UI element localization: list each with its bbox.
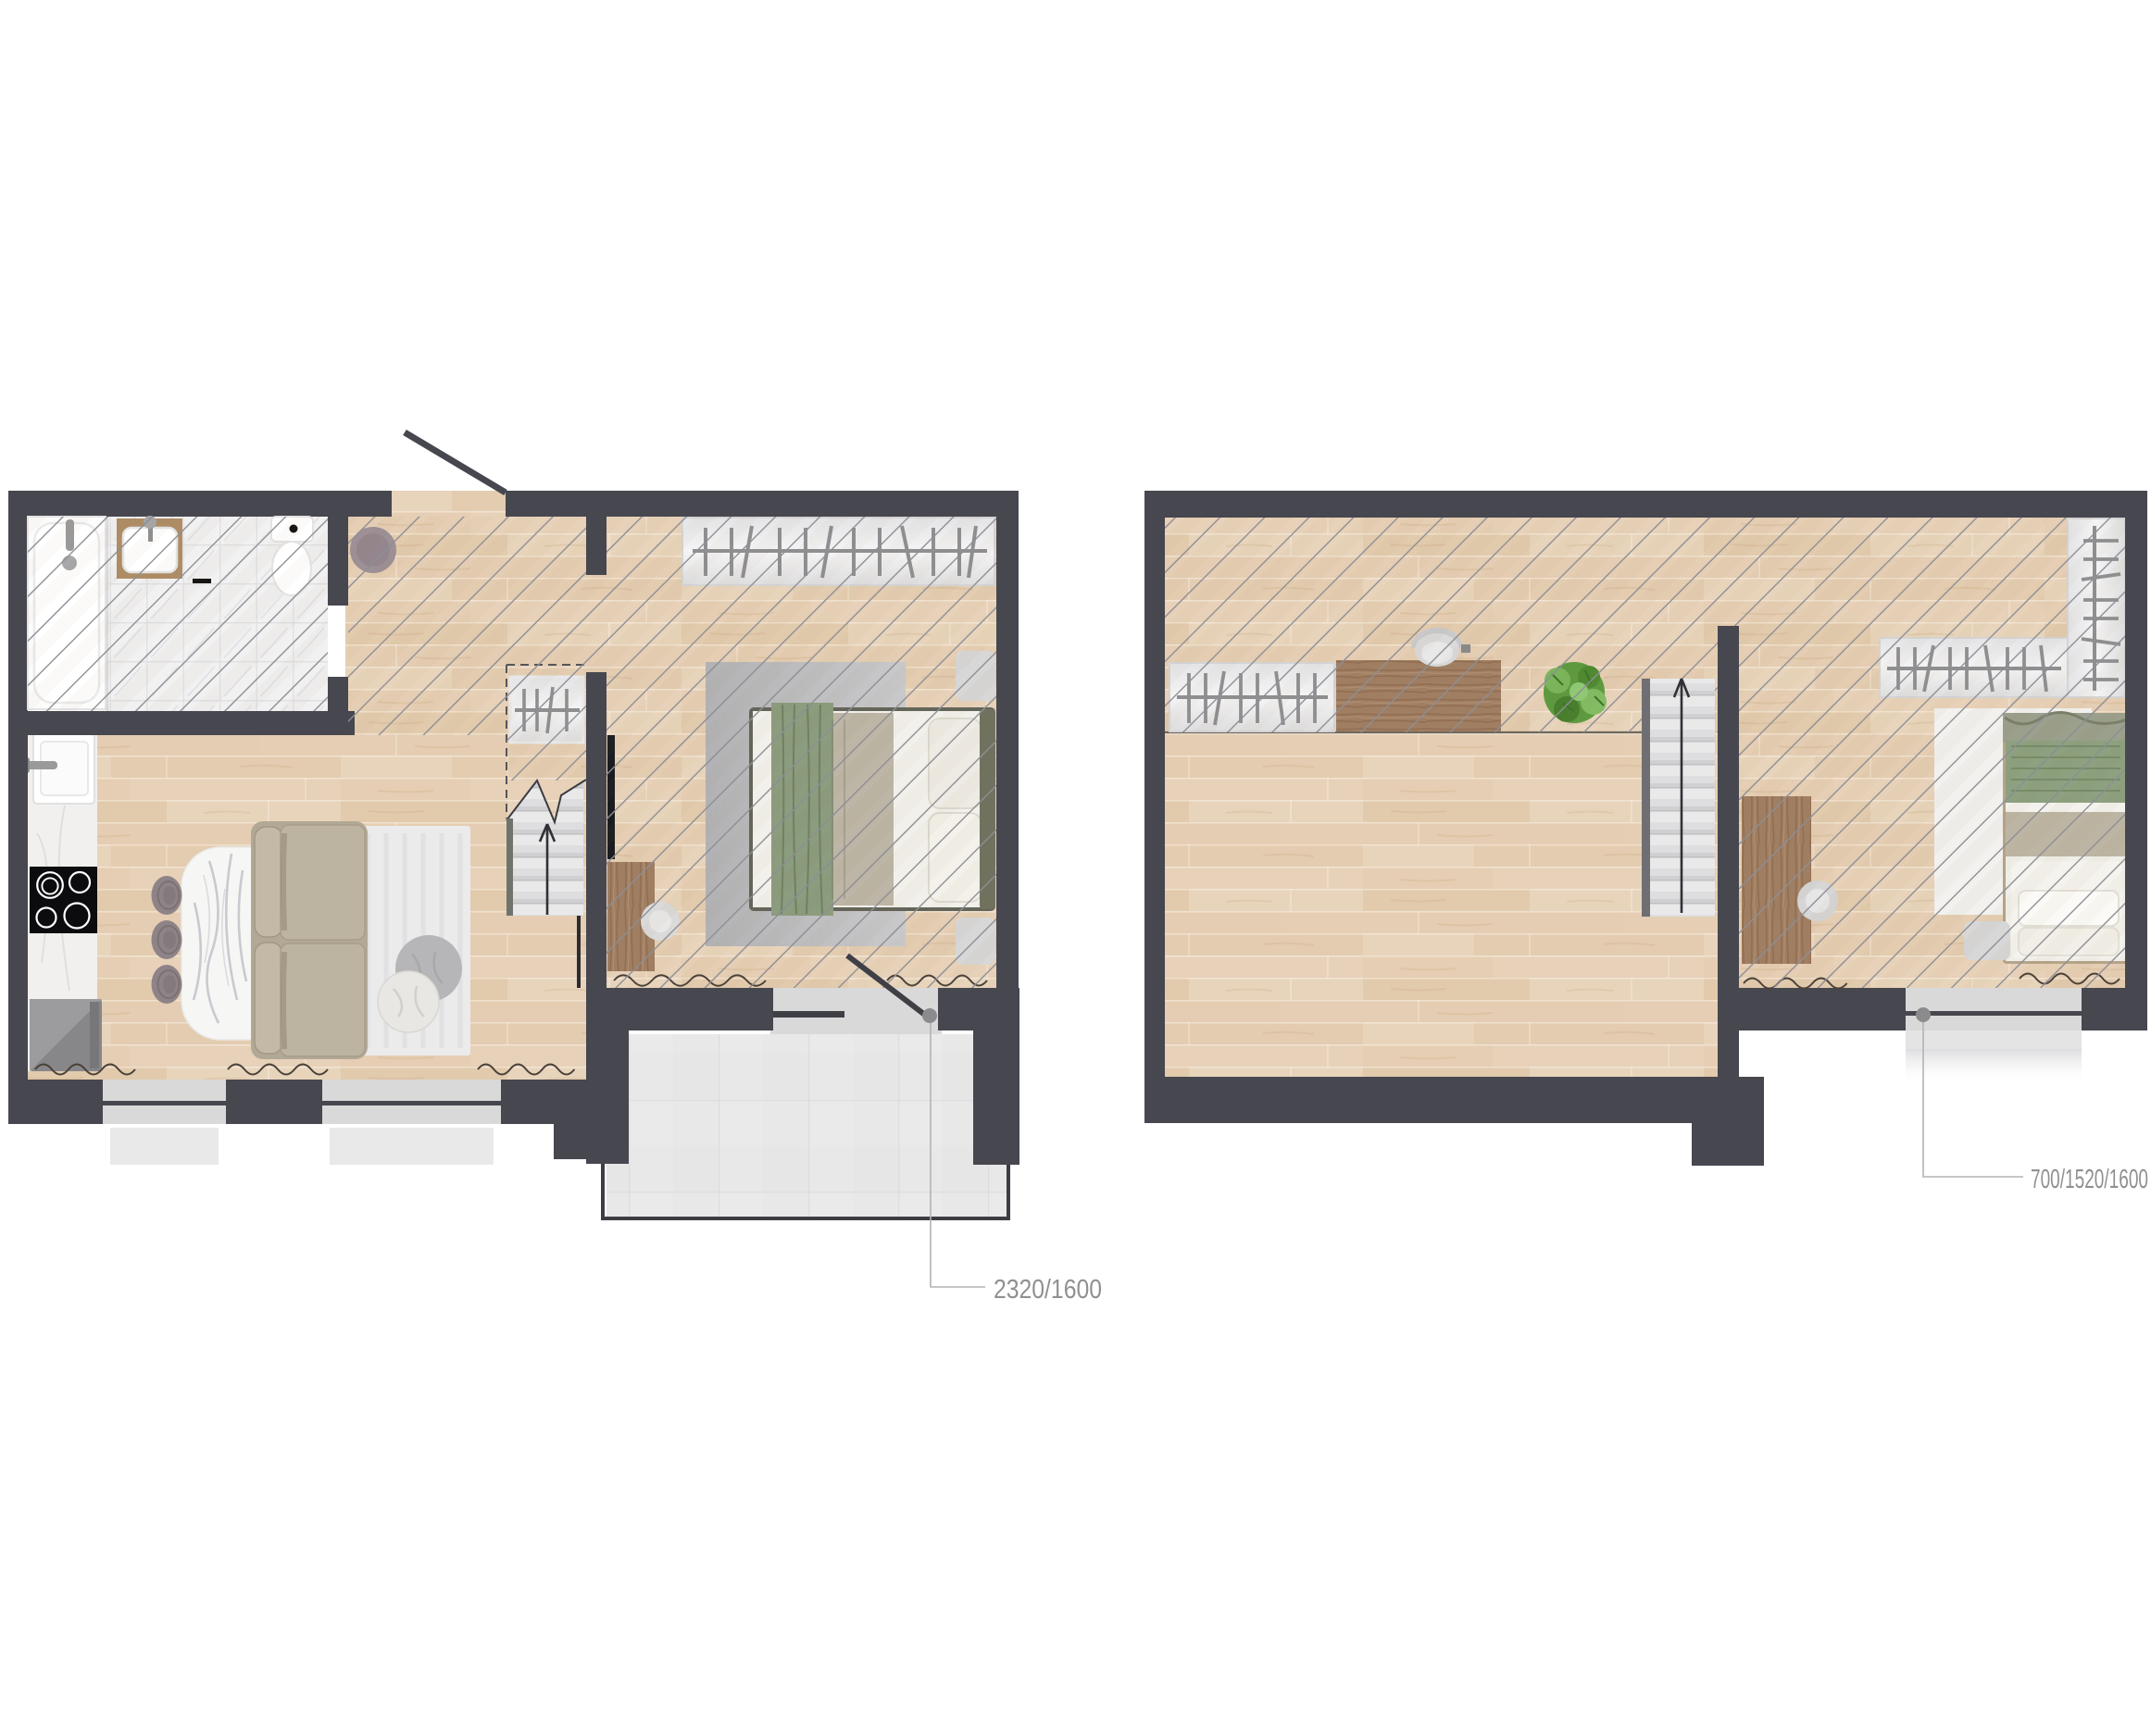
svg-text:700/1520/1600: 700/1520/1600	[2031, 1165, 2148, 1194]
svg-text:2320/1600: 2320/1600	[994, 1275, 1102, 1305]
